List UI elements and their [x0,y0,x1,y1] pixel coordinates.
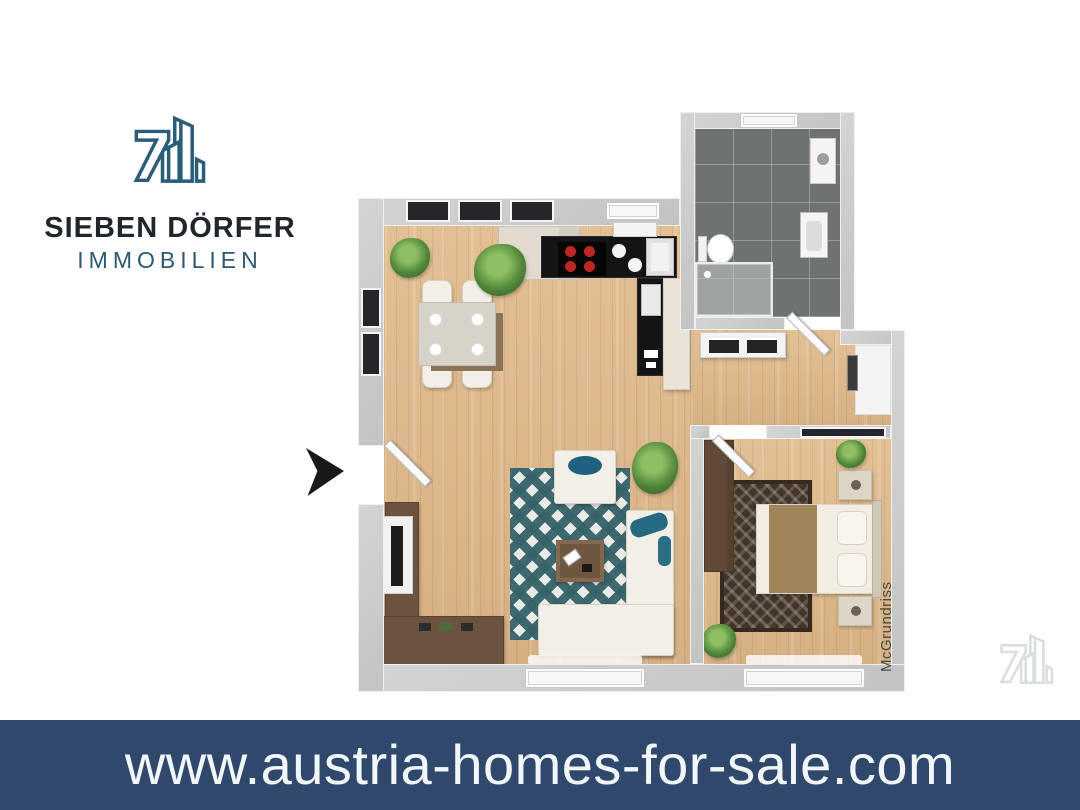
stove [558,242,606,276]
plate [471,343,484,356]
decor-plant-small [439,622,453,631]
pillow [837,511,867,545]
nightstand [838,470,872,500]
dining-chair [422,280,452,304]
dining-table [418,302,496,366]
wardrobe [704,440,734,572]
sink-bowl [612,244,626,258]
counter-knob [646,362,656,368]
lamp [851,480,861,490]
shower [695,262,773,317]
armchair [554,450,616,504]
dining-chair [422,364,452,388]
drawer [709,338,739,353]
dining-window-2 [458,200,502,222]
nightstand [838,596,872,626]
agency-subtitle: IMMOBILIEN [30,247,310,274]
bedroom-closet-slot [800,427,886,438]
wall-bedroom-top-stub [690,425,710,439]
kitchen-side-sink [641,284,661,316]
lamp [851,606,861,616]
bathroom-window [740,113,798,128]
plate [429,313,442,326]
counter-appliance [613,222,657,237]
side-window-2 [361,332,381,376]
floor-plan [358,112,905,692]
wall-left-lower [358,504,384,692]
tv-screen [391,526,403,586]
footer-banner: www.austria-homes-for-sale.com [0,720,1080,810]
toilet-bowl [707,234,734,264]
drawer [747,338,777,353]
website-url: www.austria-homes-for-sale.com [0,720,1080,810]
hall-dresser [700,332,786,358]
hall-niche [855,345,891,415]
shower-head [703,270,712,279]
tv-sideboard-horizontal [372,616,504,668]
agency-name: SIEBEN DÖRFER [30,212,310,245]
kitchen-corner-sink [646,238,674,276]
dining-window-3 [510,200,554,222]
wall-bedroom-left [690,425,704,664]
plate [429,343,442,356]
armchair-cushion [568,456,602,475]
niche-mirror [847,355,858,391]
entrance-arrow-icon [306,446,344,496]
wall-bathroom-bottom [695,317,785,330]
bedroom-balcony-window [743,668,865,688]
agency-logo-mark-icon [125,104,221,206]
living-balcony-window [525,668,645,688]
sofa-seat [538,604,674,656]
dining-chair [462,364,492,388]
floorplan-watermark: McGrundriss [878,576,895,672]
decor-item [419,623,431,631]
bed-runner [769,505,817,593]
washer-door [817,153,829,165]
burner [584,246,595,257]
decor-item [582,564,592,572]
wall-bathroom-right [840,112,855,330]
book [562,548,581,566]
wall-bathroom-left [680,112,695,330]
basin [806,221,822,251]
washer-cabinet [810,138,836,184]
kitchen-window [606,202,660,220]
burner [584,261,595,272]
counter-knob [644,350,658,358]
plate [471,313,484,326]
pillow [837,553,867,587]
real-estate-listing-image: { "branding": { "agency_name": "SIEBEN D… [0,0,1080,810]
burner [565,246,576,257]
coffee-table [556,540,604,582]
burner [565,261,576,272]
dining-window-1 [406,200,450,222]
sink-bowl [628,258,642,272]
sofa-pillow-teal [658,536,671,566]
toilet-tank [698,236,707,262]
bathroom-sink [800,212,828,258]
bed [756,504,874,594]
corner-watermark-logo-icon [993,626,1065,700]
side-window-1 [361,288,381,328]
decor-item [461,623,473,631]
